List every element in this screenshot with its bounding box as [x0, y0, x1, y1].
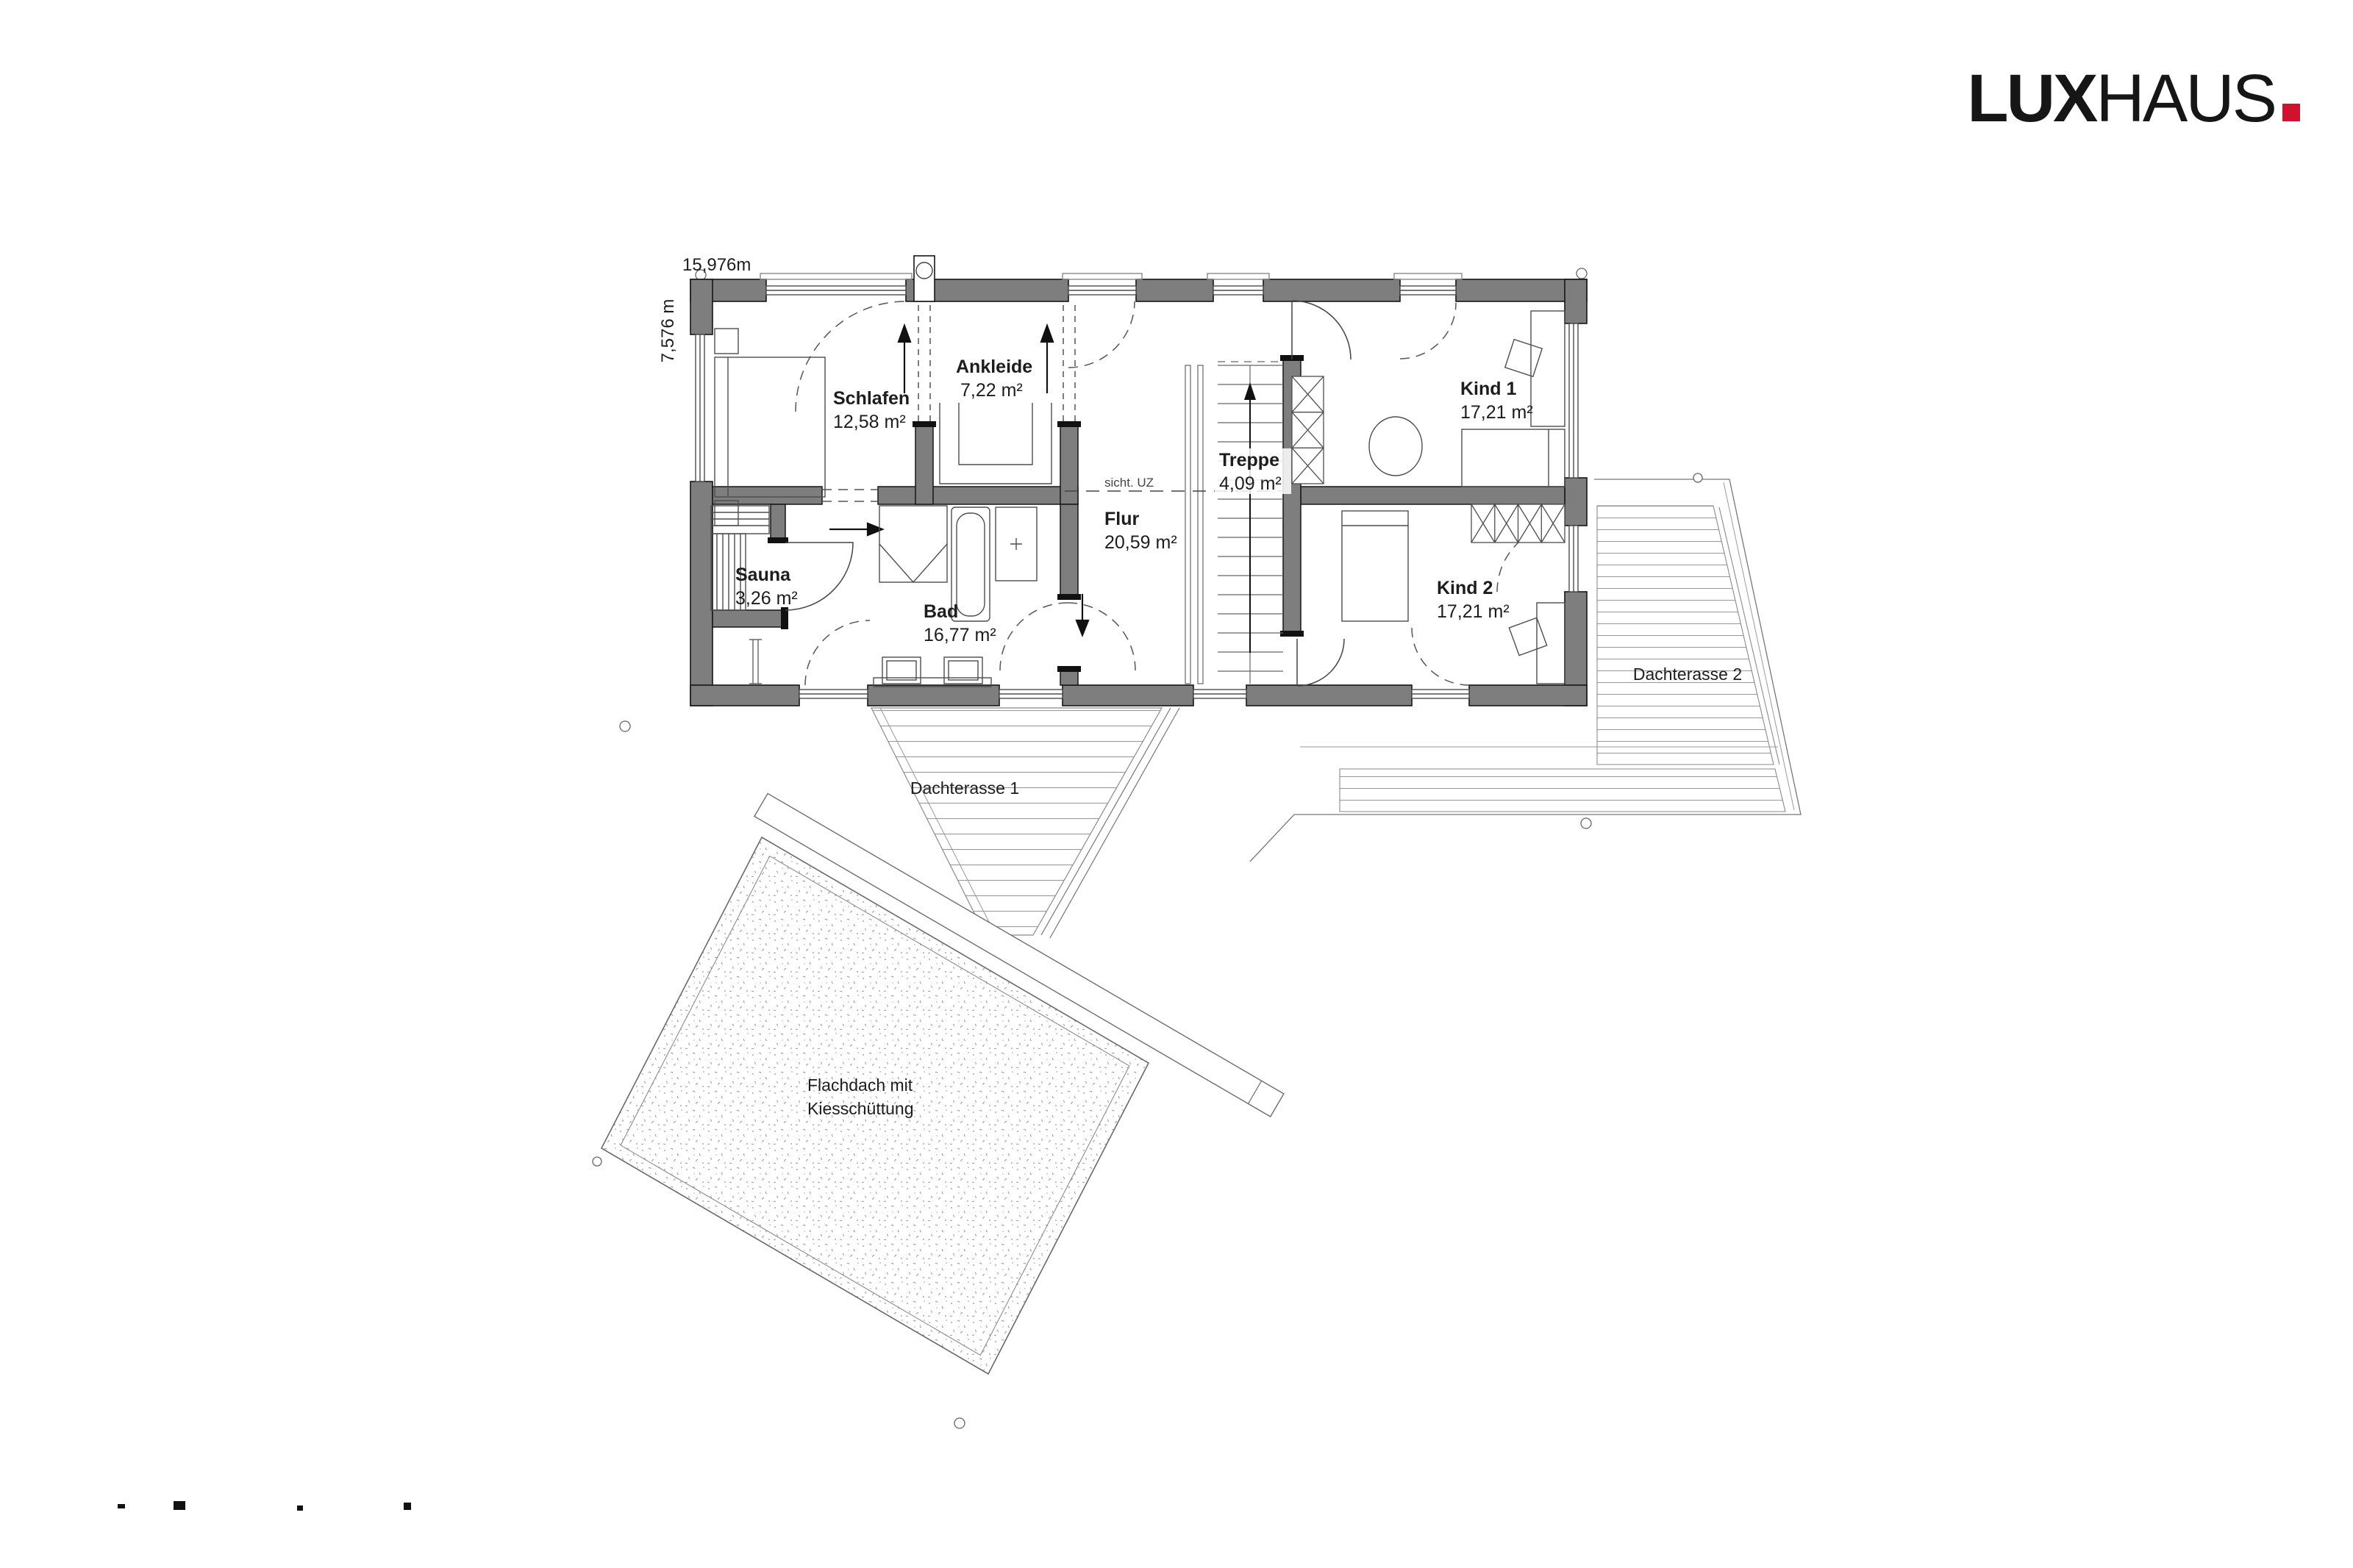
room-area-ankleide: 7,22 m²	[960, 380, 1023, 401]
room-area-kind1: 17,21 m²	[1460, 402, 1533, 423]
dim-width: 15,976m	[682, 255, 751, 275]
room-area-sauna: 3,26 m²	[735, 588, 798, 609]
shaft-kind1	[1292, 376, 1324, 484]
room-label-bad: Bad	[924, 601, 958, 622]
terrace-2-label: Dachterasse 2	[1633, 665, 1742, 684]
room-area-schlafen: 12,58 m²	[833, 412, 906, 432]
bed-kind2	[1342, 511, 1408, 621]
room-label-kind2: Kind 2	[1437, 578, 1493, 598]
towel-rail	[749, 640, 762, 684]
room-area-kind2: 17,21 m²	[1437, 601, 1510, 622]
wardrobe-ankleide	[940, 403, 1051, 484]
room-area-bad: 16,77 m²	[924, 625, 996, 645]
flat-roof: Flachdach mit Kiesschüttung	[601, 837, 1149, 1374]
bed-kind1	[1462, 429, 1565, 487]
room-area-flur: 20,59 m²	[1104, 532, 1177, 553]
room-label-sauna: Sauna	[735, 565, 791, 585]
terrace-1-label: Dachterasse 1	[910, 778, 1019, 798]
room-label-schlafen: Schlafen	[833, 388, 910, 409]
desk-kind2	[1537, 603, 1565, 684]
chair-kind1	[1505, 340, 1542, 376]
chimney	[914, 256, 935, 301]
room-label-ankleide: Ankleide	[956, 357, 1032, 377]
room-label-treppe: Treppe	[1219, 450, 1279, 470]
room-area-treppe: 4,09 m²	[1219, 473, 1282, 494]
stairs	[1185, 362, 1283, 684]
flat-roof-label-2: Kiesschüttung	[807, 1099, 913, 1118]
wardrobe-kind2	[1471, 504, 1565, 543]
washbasins	[874, 657, 991, 687]
rug-kind1	[1369, 417, 1422, 476]
lounger-bad	[879, 506, 947, 582]
room-label-kind1: Kind 1	[1460, 379, 1516, 399]
flat-roof-label-1: Flachdach mit	[807, 1075, 913, 1095]
beam-label: sicht. UZ	[1104, 476, 1154, 490]
room-label-flur: Flur	[1104, 509, 1139, 529]
dim-height: 7,576 m	[658, 299, 678, 363]
page: { "logo": { "lux": "LUX", "haus": "HAUS"…	[0, 0, 2353, 1568]
floor-plan: Dachterasse 1 Flachdach mit Kiesschüttun…	[0, 0, 2353, 1568]
chair-kind2	[1509, 617, 1546, 655]
shower	[996, 507, 1037, 581]
